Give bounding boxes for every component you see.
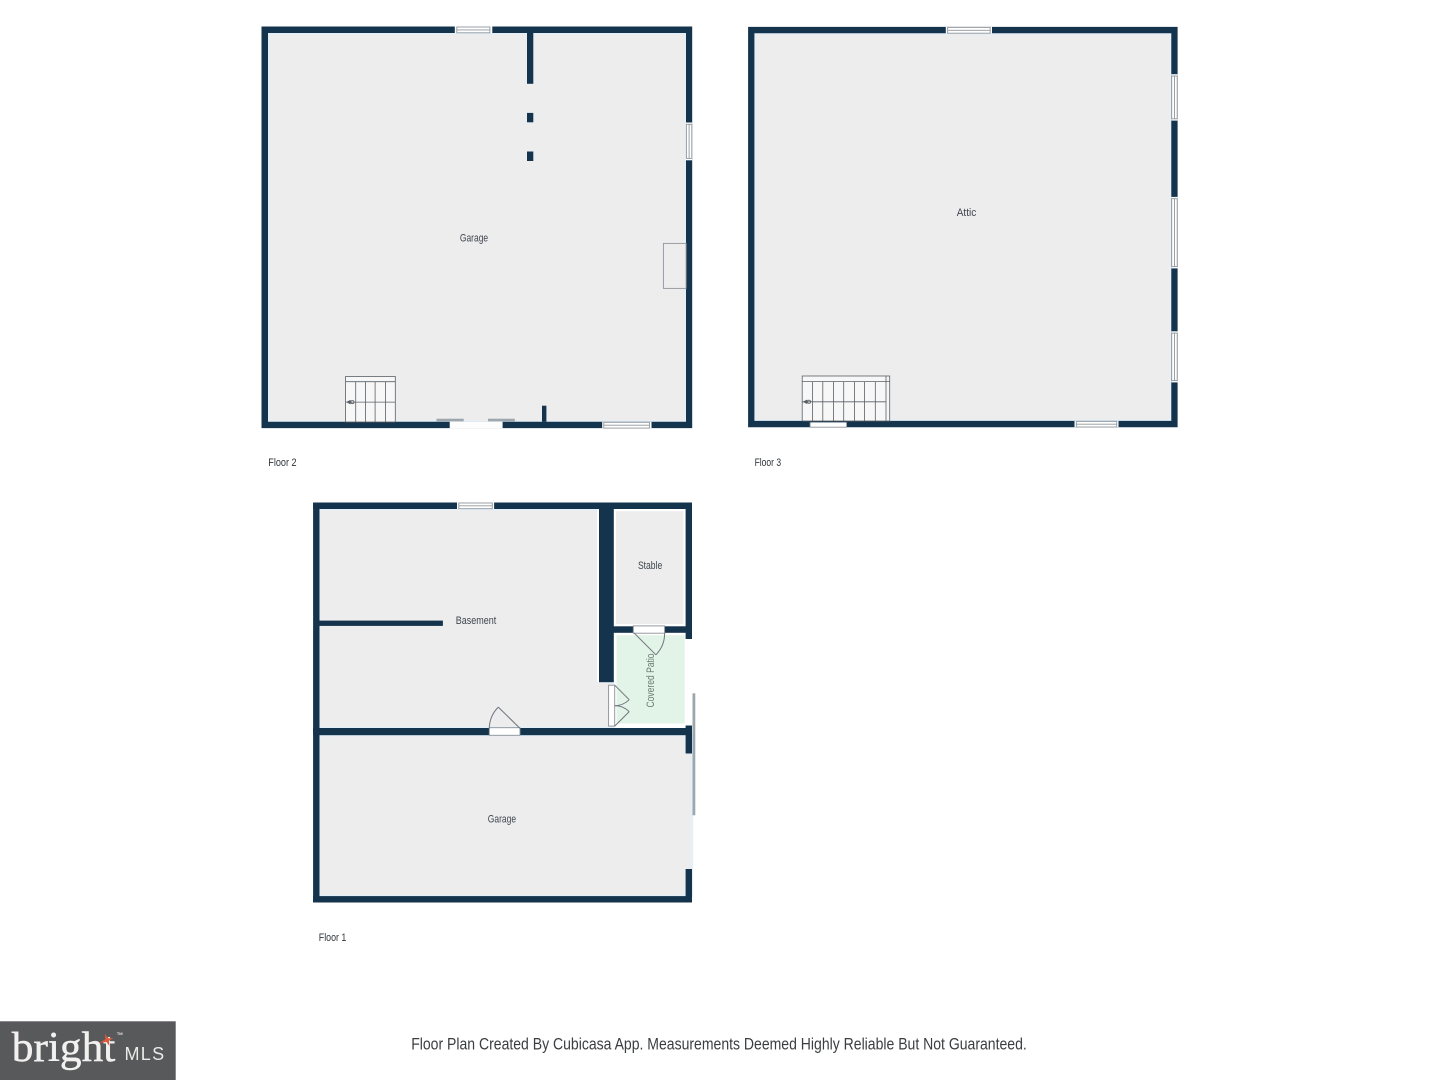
- svg-text:Floor 2: Floor 2: [268, 457, 296, 469]
- svg-text:bright: bright: [12, 1025, 116, 1071]
- svg-text:Garage: Garage: [460, 233, 488, 245]
- svg-text:Stable: Stable: [638, 560, 662, 572]
- svg-text:Garage: Garage: [488, 813, 516, 825]
- svg-text:™: ™: [117, 1032, 124, 1039]
- svg-text:MLS: MLS: [125, 1044, 165, 1064]
- svg-text:Basement: Basement: [456, 615, 497, 627]
- svg-text:Floor 3: Floor 3: [755, 457, 782, 469]
- svg-text:Attic: Attic: [957, 207, 977, 219]
- svg-text:Floor Plan Created By Cubicasa: Floor Plan Created By Cubicasa App. Meas…: [411, 1036, 1027, 1054]
- svg-text:Floor 1: Floor 1: [319, 932, 347, 944]
- svg-text:Covered Patio: Covered Patio: [645, 654, 657, 708]
